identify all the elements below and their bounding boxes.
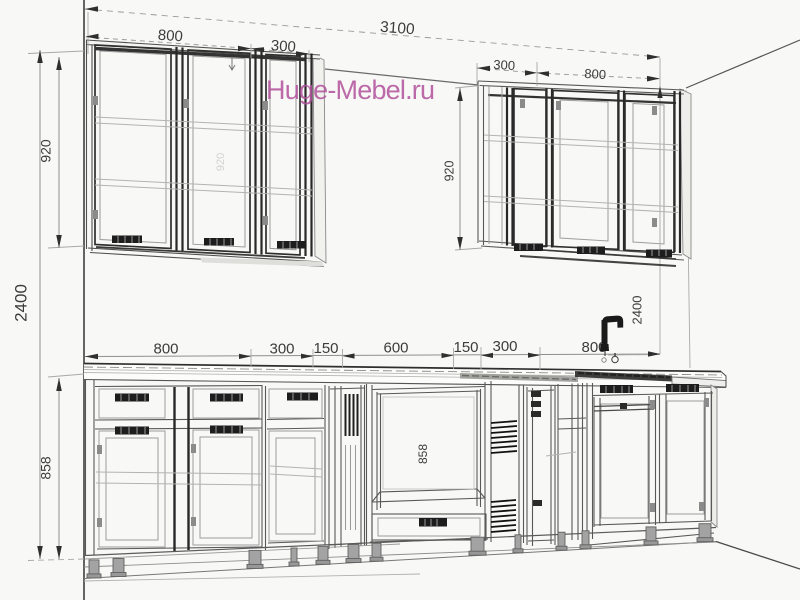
svg-text:2400: 2400 xyxy=(630,296,645,325)
svg-text:800: 800 xyxy=(153,341,178,358)
svg-text:2400: 2400 xyxy=(12,284,31,322)
svg-text:Huge-Mebel.ru: Huge-Mebel.ru xyxy=(266,75,435,105)
svg-text:800: 800 xyxy=(584,66,606,82)
svg-text:858: 858 xyxy=(416,444,430,464)
svg-text:300: 300 xyxy=(270,37,296,56)
svg-text:600: 600 xyxy=(383,340,408,357)
svg-text:920: 920 xyxy=(215,153,227,171)
svg-text:920: 920 xyxy=(38,139,54,163)
svg-text:300: 300 xyxy=(269,341,294,358)
svg-text:3100: 3100 xyxy=(379,19,415,39)
svg-text:800: 800 xyxy=(157,27,183,46)
svg-text:920: 920 xyxy=(443,161,457,182)
svg-text:150: 150 xyxy=(453,339,478,356)
svg-text:150: 150 xyxy=(313,340,338,357)
svg-text:300: 300 xyxy=(492,338,517,355)
svg-text:300: 300 xyxy=(493,57,515,73)
svg-text:858: 858 xyxy=(38,456,54,480)
